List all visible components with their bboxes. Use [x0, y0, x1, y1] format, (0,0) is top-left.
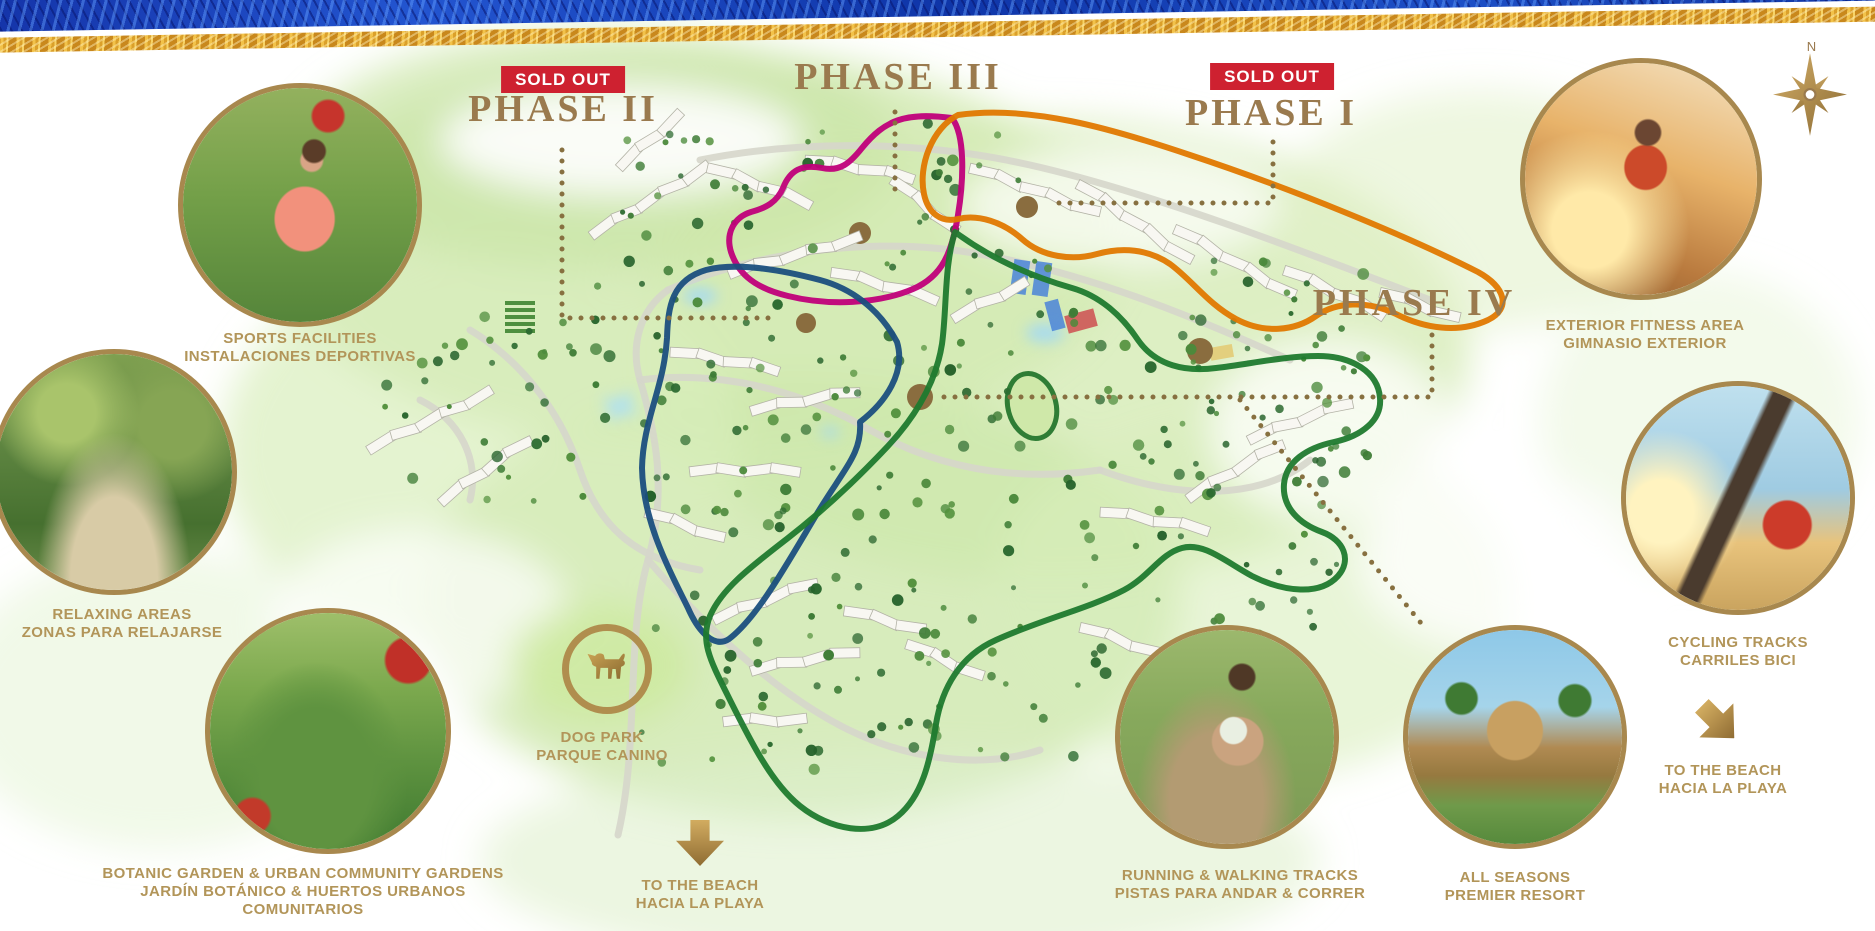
running-photo-circle — [1115, 625, 1339, 849]
fitness-photo-circle — [1520, 58, 1762, 300]
relaxing-photo-circle — [0, 349, 237, 595]
cycling-photo-circle — [1621, 381, 1855, 615]
sports-photo-circle — [178, 83, 422, 327]
fitness-caption: EXTERIOR FITNESS AREA GIMNASIO EXTERIOR — [1546, 317, 1745, 353]
resort-caption: ALL SEASONS PREMIER RESORT — [1445, 869, 1586, 905]
resort-playground-image — [1408, 630, 1622, 844]
runner-trail-image — [1120, 630, 1334, 844]
botanic-photo-circle — [205, 608, 451, 854]
dog-park-marker — [562, 624, 652, 714]
resort-photo-circle — [1403, 625, 1627, 849]
phase-2-label: PHASE II — [468, 90, 658, 128]
outdoor-gym-image — [1525, 63, 1757, 295]
phase-1-label: PHASE I — [1185, 94, 1357, 132]
phase-3-label: PHASE III — [794, 58, 1002, 96]
sold-out-badge-phase-1: SOLD OUT — [1210, 63, 1334, 90]
bicycle-sunset-image — [1626, 386, 1850, 610]
beach-center-caption: TO THE BEACH HACIA LA PLAYA — [636, 877, 764, 913]
phase-4-label: PHASE IV — [1313, 284, 1515, 322]
compass-north-label: N — [1807, 39, 1816, 54]
community-garden-image — [210, 613, 446, 849]
botanic-caption: BOTANIC GARDEN & URBAN COMMUNITY GARDENS… — [102, 865, 503, 919]
padel-player-image — [183, 88, 417, 322]
dog-park-caption: DOG PARK PARQUE CANINO — [536, 729, 668, 765]
beach-right-caption: TO THE BEACH HACIA LA PLAYA — [1659, 762, 1787, 798]
dog-icon — [581, 643, 633, 695]
sports-caption: SPORTS FACILITIES INSTALACIONES DEPORTIV… — [184, 330, 416, 366]
forest-boardwalk-image — [0, 354, 232, 590]
masterplan-flyer: SOLD OUT PHASE II PHASE III SOLD OUT PHA… — [0, 0, 1875, 931]
cycling-caption: CYCLING TRACKS CARRILES BICI — [1668, 634, 1808, 670]
running-caption: RUNNING & WALKING TRACKS PISTAS PARA AND… — [1115, 867, 1365, 903]
relaxing-caption: RELAXING AREAS ZONAS PARA RELAJARSE — [22, 606, 223, 642]
compass-rose: N — [1765, 38, 1855, 138]
